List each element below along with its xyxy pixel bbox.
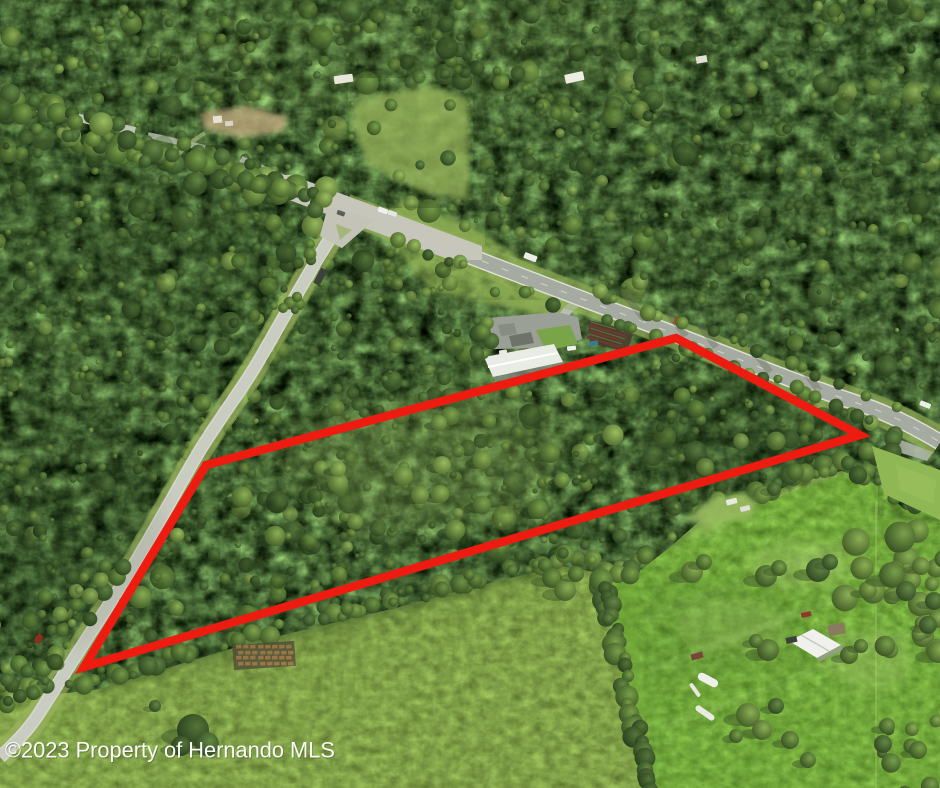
svg-text:©2023 Property of Hernando MLS: ©2023 Property of Hernando MLS bbox=[5, 738, 335, 763]
